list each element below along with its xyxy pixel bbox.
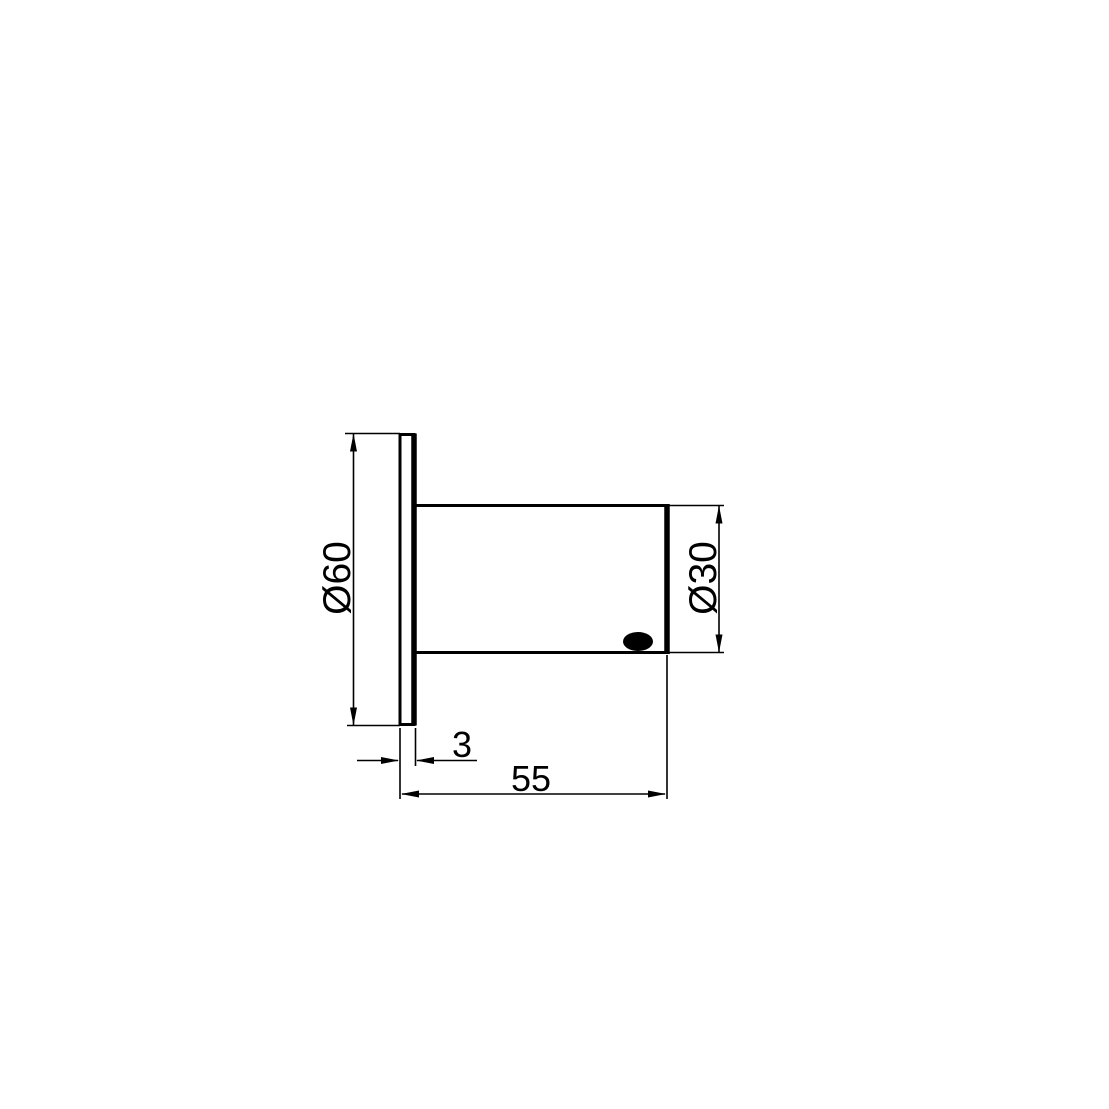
dim-flange-diameter: Ø60 xyxy=(316,434,400,726)
arrowhead-right xyxy=(648,791,666,798)
technical-drawing: Ø60 Ø30 3 xyxy=(0,0,1109,1109)
dim-overall-length: 55 xyxy=(400,655,667,799)
arrowhead-up xyxy=(350,434,357,452)
arrowhead-right xyxy=(381,757,399,764)
arrowhead-down xyxy=(350,708,357,726)
dim-body-diameter: Ø30 xyxy=(669,506,725,653)
arrowhead-left xyxy=(416,757,434,764)
overall-length-label: 55 xyxy=(511,758,551,799)
arrowhead-left xyxy=(401,791,419,798)
part-outline xyxy=(400,434,668,726)
technical-drawing-canvas: Ø60 Ø30 3 xyxy=(0,0,1109,1109)
flange-thickness-label: 3 xyxy=(452,724,472,765)
arrowhead-down xyxy=(716,635,723,653)
arrowhead-up xyxy=(716,506,723,524)
dim-flange-thickness: 3 xyxy=(357,724,477,766)
underside-hole-dot xyxy=(623,632,653,651)
flange-diameter-label: Ø60 xyxy=(316,541,359,615)
body-diameter-label: Ø30 xyxy=(682,541,725,615)
